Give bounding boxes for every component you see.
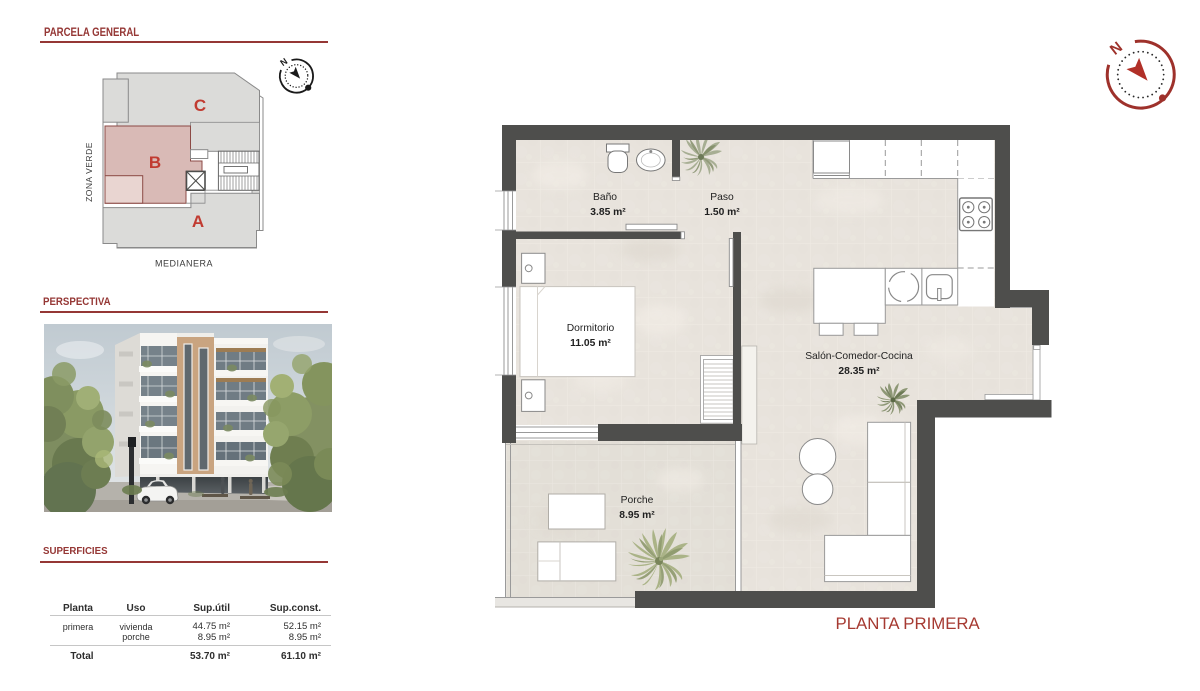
svg-text:C: C [194,96,206,115]
svg-text:MEDIANERA: MEDIANERA [155,259,213,269]
svg-text:A: A [192,212,204,231]
svg-text:ZONA VERDE: ZONA VERDE [84,142,94,202]
svg-text:11.05 m²: 11.05 m² [570,338,611,349]
svg-text:N: N [278,56,289,68]
svg-text:1.50 m²: 1.50 m² [704,207,740,218]
svg-text:Dormitorio: Dormitorio [567,323,615,334]
svg-text:Porche: Porche [621,495,654,506]
svg-text:28.35 m²: 28.35 m² [838,366,880,377]
svg-text:Paso: Paso [710,192,734,203]
svg-text:3.85 m²: 3.85 m² [590,207,626,218]
svg-text:Baño: Baño [593,192,617,203]
svg-text:Salón-Comedor-Cocina: Salón-Comedor-Cocina [805,351,913,362]
svg-text:N: N [1107,39,1126,59]
svg-text:8.95 m²: 8.95 m² [619,510,655,521]
svg-text:B: B [149,153,161,172]
